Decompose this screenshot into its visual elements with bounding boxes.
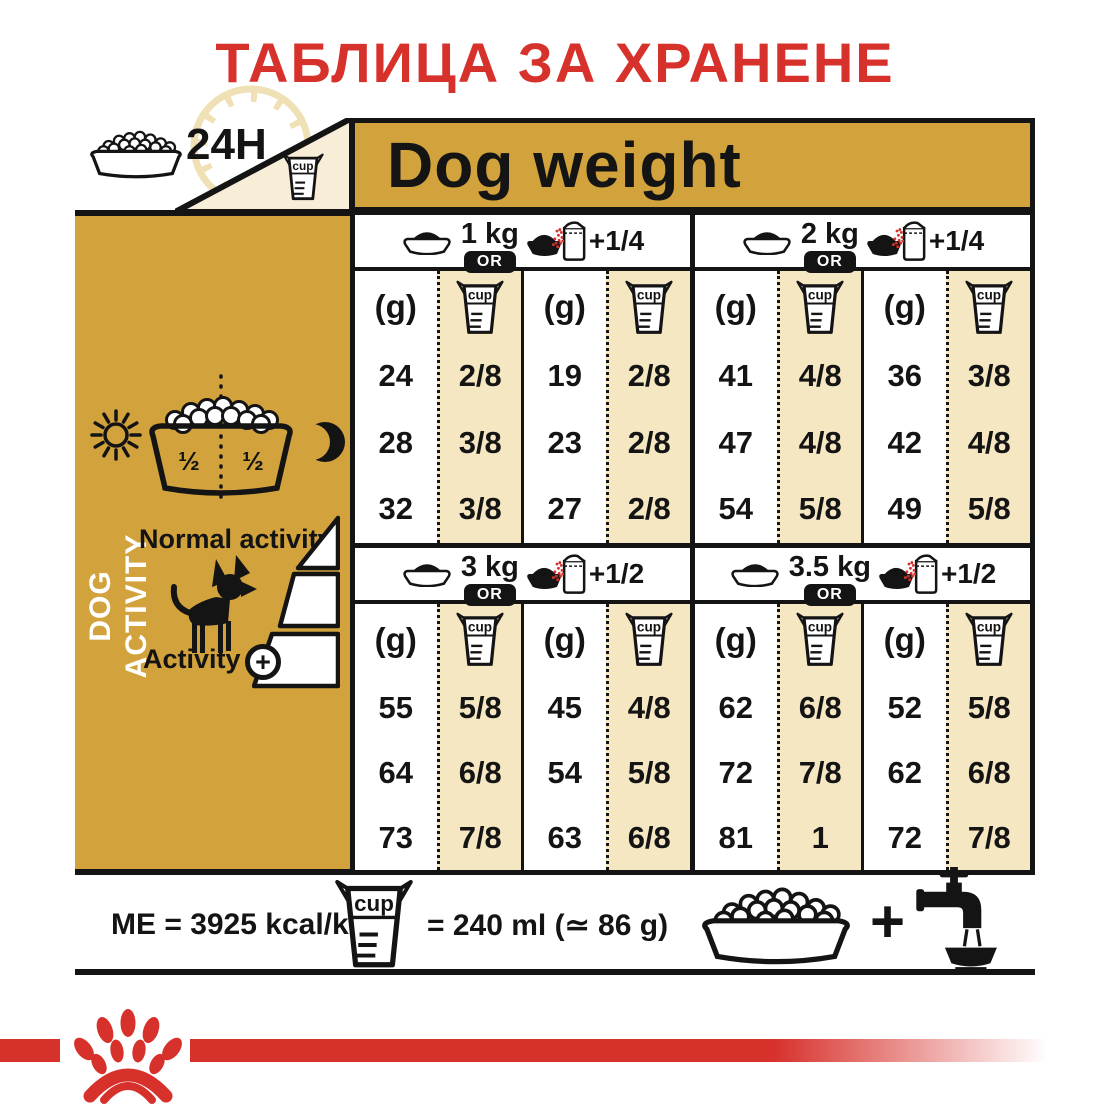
table-cell: 5/8	[949, 676, 1031, 741]
weight-section-3-5kg: 3.5 kg OR +1/2 (g) 62 72 81 6/8	[690, 548, 1030, 871]
grams-column: (g) 19 23 27	[521, 271, 606, 543]
table-cell: 72	[864, 805, 946, 870]
activity-label: Activity	[143, 644, 241, 675]
weight-section-1kg: 1 kg OR +1/4 (g) 24 28 32 2/8	[355, 215, 690, 543]
gram-unit-label: (g)	[884, 288, 926, 326]
table-cell: 5/8	[440, 676, 522, 741]
gram-unit-label: (g)	[375, 288, 417, 326]
grams-column-header: (g)	[355, 604, 437, 676]
table-cell: 2/8	[609, 476, 691, 543]
cup-column-header	[440, 604, 522, 676]
feeding-guide-page: ТАБЛИЦА ЗА ХРАНЕНЕ 24H Dog weight	[0, 0, 1110, 1110]
cup-column-header	[780, 271, 862, 343]
gram-unit-label: (g)	[544, 288, 586, 326]
table-cell: 3/8	[440, 476, 522, 543]
grams-column-header: (g)	[695, 604, 777, 676]
weight-section-2kg: 2 kg OR +1/4 (g) 41 47 54 4/8	[690, 215, 1030, 543]
measuring-cup-icon	[456, 279, 504, 336]
cup-column-header	[949, 604, 1031, 676]
plain-bowl-icon	[401, 560, 453, 587]
or-badge: OR	[464, 251, 516, 273]
cup-column: 2/8 3/8 3/8	[437, 271, 522, 543]
table-cell: 5/8	[949, 476, 1031, 543]
table-row-top: 1 kg OR +1/4 (g) 24 28 32 2/8	[355, 215, 1030, 543]
cup-column: 5/8 6/8 7/8	[437, 604, 522, 871]
table-cell: 41	[695, 343, 777, 410]
table-cell: 4/8	[780, 410, 862, 477]
table-row-bottom: 3 kg OR +1/2 (g) 55 64 73 5/8	[355, 543, 1030, 871]
table-cell: 36	[864, 343, 946, 410]
dog-activity-sidebar: ½ ½ DOG ACTIVITY Normal activity	[75, 210, 350, 875]
table-cell: 3/8	[949, 343, 1031, 410]
extra-portion-label: +1/4	[589, 225, 644, 257]
moon-icon	[301, 418, 345, 466]
feeding-table: 1 kg OR +1/4 (g) 24 28 32 2/8	[350, 210, 1035, 875]
measuring-cup-icon	[965, 611, 1013, 668]
measuring-cup-icon	[625, 611, 673, 668]
grams-column: (g) 41 47 54	[695, 271, 777, 543]
grams-column-header: (g)	[864, 271, 946, 343]
dog-weight-header: Dog weight	[350, 118, 1035, 212]
grams-column-header: (g)	[524, 604, 606, 676]
cup-column: 6/8 7/8 1	[777, 604, 862, 871]
extra-portion-label: +1/4	[929, 225, 984, 257]
table-cell: 73	[355, 805, 437, 870]
table-cell: 2/8	[609, 343, 691, 410]
cup-column-header	[949, 271, 1031, 343]
table-cell: 55	[355, 676, 437, 741]
measuring-cup-icon	[333, 878, 415, 970]
table-cell: 7/8	[440, 805, 522, 870]
table-cell: 81	[695, 805, 777, 870]
section-body: (g) 24 28 32 2/8 3/8 3/8 (g) 19 23	[355, 271, 690, 543]
kibble-bag-bowl-icon	[527, 551, 587, 597]
table-cell: 27	[524, 476, 606, 543]
kibble-bag-bowl-icon	[879, 551, 939, 597]
grams-column: (g) 45 54 63	[521, 604, 606, 871]
table-cell: 24	[355, 343, 437, 410]
cup-column: 4/8 5/8 6/8	[606, 604, 691, 871]
table-cell: 72	[695, 740, 777, 805]
page-title: ТАБЛИЦА ЗА ХРАНЕНЕ	[0, 30, 1110, 95]
table-cell: 6/8	[780, 676, 862, 741]
table-cell: 62	[864, 740, 946, 805]
grams-column-header: (g)	[524, 271, 606, 343]
table-cell: 3/8	[440, 410, 522, 477]
gram-unit-label: (g)	[884, 621, 926, 659]
footer-info-bar: ME = 3925 kcal/kg = 240 ml (≃ 86 g) +	[75, 875, 1035, 975]
half-right-label: ½	[242, 446, 264, 476]
plain-bowl-icon	[729, 560, 781, 587]
kibble-bowl-icon	[84, 126, 188, 182]
weight-label: 1 kg	[461, 218, 519, 251]
table-cell: 54	[524, 740, 606, 805]
table-cell: 49	[864, 476, 946, 543]
cup-wedge-panel	[175, 118, 352, 212]
water-tap-icon	[907, 867, 1001, 971]
table-cell: 19	[524, 343, 606, 410]
cup-column-header	[780, 604, 862, 676]
table-cell: 4/8	[780, 343, 862, 410]
section-body: (g) 62 72 81 6/8 7/8 1 (g) 52 62	[695, 604, 1030, 871]
measuring-cup-icon	[456, 611, 504, 668]
section-body: (g) 55 64 73 5/8 6/8 7/8 (g) 45 54	[355, 604, 690, 871]
kibble-bag-bowl-icon	[527, 218, 587, 264]
gram-unit-label: (g)	[544, 621, 586, 659]
table-cell: 23	[524, 410, 606, 477]
table-cell: 64	[355, 740, 437, 805]
table-cell: 5/8	[780, 476, 862, 543]
table-cell: 42	[864, 410, 946, 477]
table-cell: 28	[355, 410, 437, 477]
table-cell: 6/8	[949, 740, 1031, 805]
table-cell: 6/8	[440, 740, 522, 805]
table-cell: 47	[695, 410, 777, 477]
measuring-cup-icon	[796, 611, 844, 668]
table-cell: 54	[695, 476, 777, 543]
extra-portion-label: +1/2	[589, 558, 644, 590]
or-badge: OR	[804, 584, 856, 606]
weight-section-3kg: 3 kg OR +1/2 (g) 55 64 73 5/8	[355, 548, 690, 871]
section-header: 1 kg OR +1/4	[355, 215, 690, 271]
dog-activity-vertical-label: DOG ACTIVITY	[83, 496, 119, 716]
weight-or-stack: 1 kg OR	[461, 215, 519, 269]
plain-bowl-icon	[401, 228, 453, 255]
gram-unit-label: (g)	[715, 288, 757, 326]
gram-unit-label: (g)	[715, 621, 757, 659]
or-badge: OR	[804, 251, 856, 273]
cup-column: 5/8 6/8 7/8	[946, 604, 1031, 871]
table-cell: 5/8	[609, 740, 691, 805]
table-cell: 62	[695, 676, 777, 741]
grams-column: (g) 62 72 81	[695, 604, 777, 871]
section-header: 3.5 kg OR +1/2	[695, 548, 1030, 604]
section-header: 3 kg OR +1/2	[355, 548, 690, 604]
grams-column-header: (g)	[864, 604, 946, 676]
kibble-bowl-icon	[691, 881, 861, 969]
metabolizable-energy-label: ME = 3925 kcal/kg	[111, 908, 367, 942]
weight-label: 3.5 kg	[789, 551, 871, 584]
measuring-cup-icon	[282, 152, 324, 202]
half-left-label: ½	[178, 446, 200, 476]
brand-stripe-right	[190, 1039, 1048, 1062]
table-cell: 2/8	[440, 343, 522, 410]
weight-label: 3 kg	[461, 551, 519, 584]
cup-column-header	[440, 271, 522, 343]
section-header: 2 kg OR +1/4	[695, 215, 1030, 271]
plain-bowl-icon	[741, 228, 793, 255]
weight-or-stack: 3 kg OR	[461, 548, 519, 602]
table-cell: 7/8	[949, 805, 1031, 870]
activity-plus-icon: +	[245, 644, 281, 680]
table-cell: 7/8	[780, 740, 862, 805]
table-cell: 6/8	[609, 805, 691, 870]
weight-label: 2 kg	[801, 218, 859, 251]
table-cell: 4/8	[609, 676, 691, 741]
cup-column-header	[609, 604, 691, 676]
kibble-bag-bowl-icon	[867, 218, 927, 264]
measuring-cup-icon	[965, 279, 1013, 336]
table-cell: 52	[864, 676, 946, 741]
brand-stripe-left	[0, 1039, 60, 1062]
weight-or-stack: 3.5 kg OR	[789, 548, 871, 602]
table-cell: 4/8	[949, 410, 1031, 477]
cup-equivalence-label: = 240 ml (≃ 86 g)	[427, 908, 668, 943]
table-cell: 1	[780, 805, 862, 870]
plus-icon: +	[870, 887, 905, 956]
grams-column: (g) 52 62 72	[861, 604, 946, 871]
grams-column: (g) 24 28 32	[355, 271, 437, 543]
paw-logo-icon	[66, 1004, 190, 1104]
table-cell: 32	[355, 476, 437, 543]
table-cell: 2/8	[609, 410, 691, 477]
cup-column: 3/8 4/8 5/8	[946, 271, 1031, 543]
dog-weight-label: Dog weight	[387, 128, 742, 202]
table-cell: 63	[524, 805, 606, 870]
half-portions-bowl-icon: ½ ½	[137, 374, 305, 510]
measuring-cup-icon	[796, 279, 844, 336]
cup-column-header	[609, 271, 691, 343]
grams-column: (g) 36 42 49	[861, 271, 946, 543]
cup-column: 4/8 4/8 5/8	[777, 271, 862, 543]
grams-column-header: (g)	[355, 271, 437, 343]
or-badge: OR	[464, 584, 516, 606]
gram-unit-label: (g)	[375, 621, 417, 659]
section-body: (g) 41 47 54 4/8 4/8 5/8 (g) 36 42	[695, 271, 1030, 543]
weight-or-stack: 2 kg OR	[801, 215, 859, 269]
cup-column: 2/8 2/8 2/8	[606, 271, 691, 543]
extra-portion-label: +1/2	[941, 558, 996, 590]
grams-column: (g) 55 64 73	[355, 604, 437, 871]
grams-column-header: (g)	[695, 271, 777, 343]
measuring-cup-icon	[625, 279, 673, 336]
table-cell: 45	[524, 676, 606, 741]
